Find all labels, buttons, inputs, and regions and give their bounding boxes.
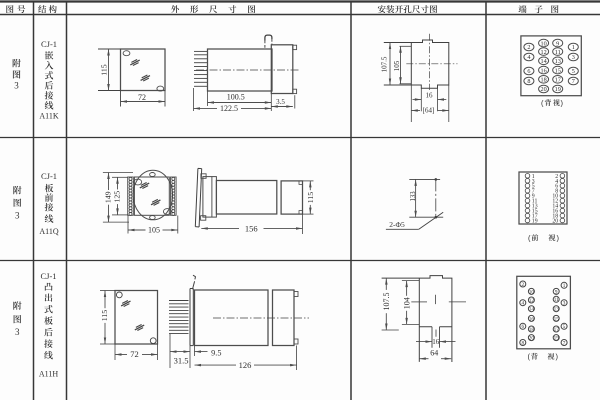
svg-text:115: 115 (306, 192, 315, 204)
svg-text:104: 104 (402, 297, 411, 309)
svg-text:[64]: [64] (423, 107, 435, 115)
svg-text:20: 20 (541, 86, 547, 93)
svg-text:16: 16 (541, 67, 547, 74)
svg-text:20: 20 (552, 219, 558, 225)
svg-text:3: 3 (14, 81, 19, 91)
svg-text:156: 156 (245, 223, 258, 233)
svg-text:126: 126 (239, 360, 252, 370)
svg-text:11: 11 (554, 297, 559, 303)
svg-text:A11Q: A11Q (39, 227, 58, 236)
svg-text:3.5: 3.5 (276, 98, 285, 106)
svg-text:122.5: 122.5 (220, 104, 238, 113)
svg-text:3: 3 (563, 301, 566, 307)
svg-text:4: 4 (527, 54, 530, 61)
svg-text:7: 7 (563, 340, 566, 346)
svg-text:115: 115 (100, 310, 109, 322)
svg-text:CJ-1: CJ-1 (41, 39, 57, 49)
svg-text:13: 13 (555, 58, 561, 65)
svg-text:7: 7 (572, 78, 575, 85)
svg-text:9.5: 9.5 (211, 349, 221, 358)
svg-text:8: 8 (527, 78, 530, 85)
svg-text:3: 3 (572, 54, 575, 61)
svg-text:1: 1 (563, 283, 566, 289)
svg-text:115: 115 (99, 64, 108, 76)
svg-text:14: 14 (529, 307, 535, 313)
svg-text:5: 5 (563, 324, 566, 330)
svg-text:2: 2 (522, 282, 525, 288)
svg-text:4: 4 (522, 301, 525, 307)
svg-text:CJ-1: CJ-1 (40, 271, 56, 281)
svg-text:17: 17 (555, 77, 561, 84)
svg-text:2: 2 (527, 44, 530, 51)
svg-text:15: 15 (554, 316, 560, 322)
svg-text:A11H: A11H (39, 370, 58, 379)
svg-text:17: 17 (554, 327, 560, 333)
svg-text:10: 10 (529, 289, 535, 295)
svg-text:31.5: 31.5 (174, 356, 189, 366)
svg-text:3: 3 (15, 211, 20, 221)
svg-text:125: 125 (113, 191, 122, 203)
svg-text:19: 19 (532, 219, 538, 225)
svg-text:3: 3 (15, 327, 20, 337)
svg-text:12: 12 (541, 49, 547, 56)
svg-text:18: 18 (529, 327, 535, 333)
svg-text:15: 15 (555, 67, 561, 74)
svg-text:72: 72 (130, 349, 139, 359)
svg-text:107.5: 107.5 (380, 56, 388, 72)
svg-text:149: 149 (104, 191, 113, 203)
svg-text:133: 133 (410, 191, 417, 202)
svg-text:100.5: 100.5 (227, 93, 245, 102)
svg-text:105: 105 (393, 60, 401, 71)
svg-text:6: 6 (522, 324, 525, 330)
svg-text:105: 105 (148, 225, 160, 234)
svg-text:9: 9 (555, 289, 558, 295)
svg-text:5: 5 (572, 68, 575, 75)
svg-text:1: 1 (572, 44, 575, 51)
svg-text:10: 10 (541, 40, 547, 47)
svg-text:72: 72 (138, 93, 146, 102)
svg-text:12: 12 (529, 298, 535, 304)
svg-text:8: 8 (522, 340, 525, 346)
svg-text:19: 19 (555, 86, 561, 93)
svg-text:2-Φ5: 2-Φ5 (389, 220, 405, 229)
svg-text:20: 20 (529, 336, 535, 342)
svg-text:16: 16 (426, 91, 434, 99)
svg-text:16: 16 (432, 338, 440, 346)
svg-text:13: 13 (554, 307, 560, 313)
svg-text:CJ-1: CJ-1 (41, 171, 57, 181)
svg-text:14: 14 (541, 58, 547, 65)
svg-text:107.5: 107.5 (382, 293, 391, 311)
svg-text:18: 18 (541, 77, 547, 84)
svg-text:19: 19 (554, 336, 560, 342)
svg-text:A11K: A11K (39, 112, 58, 121)
svg-text:11: 11 (555, 49, 561, 56)
svg-text:6: 6 (527, 68, 530, 75)
svg-text:16: 16 (529, 316, 535, 322)
svg-text:9: 9 (556, 40, 559, 47)
svg-text:64: 64 (430, 348, 438, 357)
